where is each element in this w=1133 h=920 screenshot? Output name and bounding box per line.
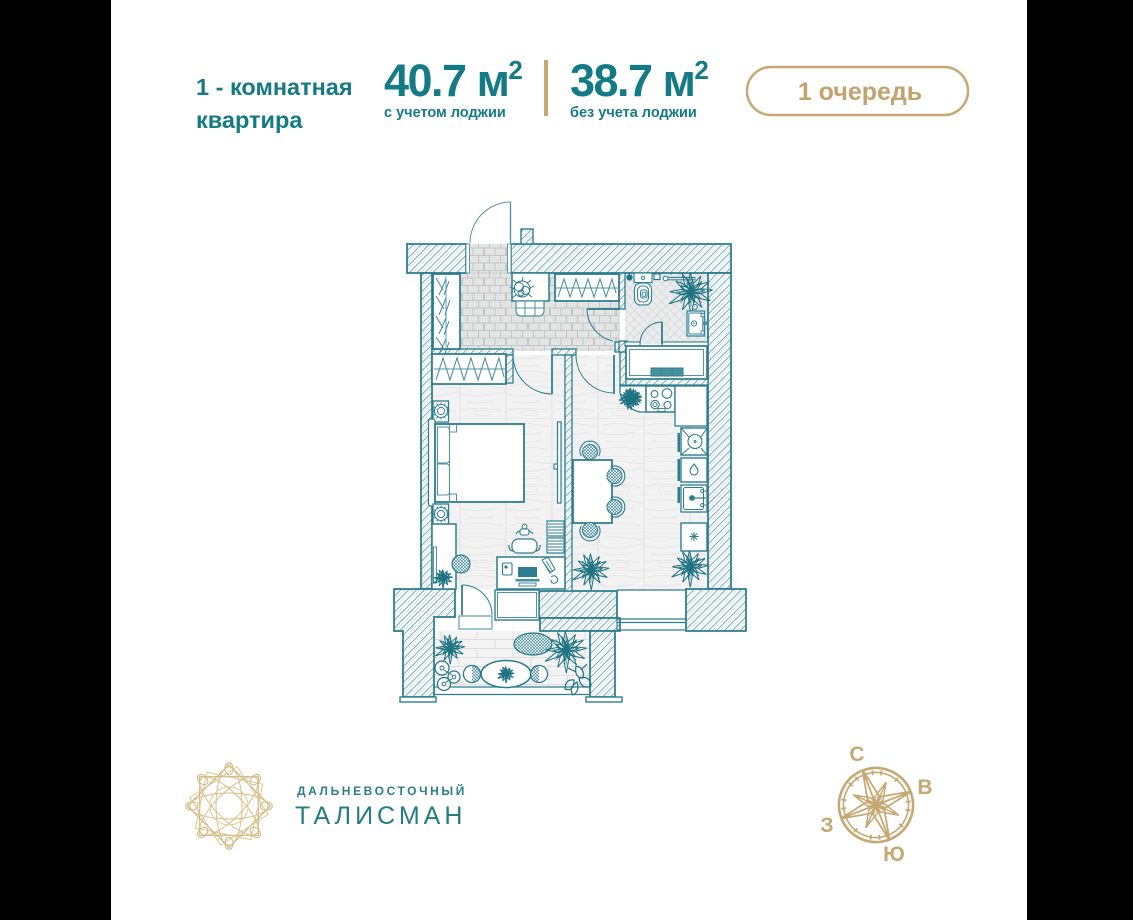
svg-text:ТАЛИСМАН: ТАЛИСМАН [295,802,466,830]
svg-text:38.7 м2: 38.7 м2 [570,55,709,106]
svg-text:ДАЛЬНЕВОСТОЧНЫЙ: ДАЛЬНЕВОСТОЧНЫЙ [297,783,467,798]
svg-text:без учета лоджии: без учета лоджии [570,105,697,121]
svg-text:1 - комнатная: 1 - комнатная [196,74,353,100]
svg-text:В: В [917,776,932,799]
svg-text:40.7 м2: 40.7 м2 [384,55,523,106]
svg-text:З: З [820,814,833,837]
svg-text:1 очередь: 1 очередь [798,78,922,106]
svg-text:с учетом лоджии: с учетом лоджии [384,105,506,121]
svg-text:квартира: квартира [196,107,303,133]
svg-text:С: С [849,743,864,766]
svg-text:Ю: Ю [883,843,905,866]
